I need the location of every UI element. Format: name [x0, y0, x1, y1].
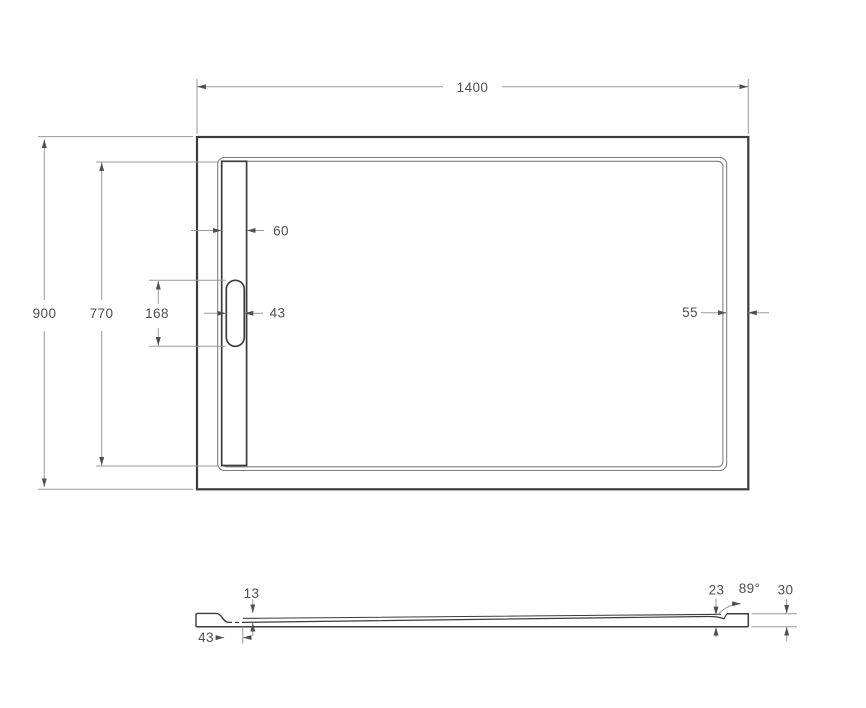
dimension-drain-recess-width: 43	[198, 627, 251, 646]
side-view	[196, 613, 748, 626]
technical-drawing: 1400 900 770 168 60 43 55	[0, 0, 866, 708]
drain-slot-oval	[226, 280, 244, 346]
dim-label-770: 770	[90, 306, 114, 321]
dimension-drain-recess-depth: 13	[244, 586, 260, 636]
dim-label-43-side: 43	[198, 630, 214, 645]
dim-label-168: 168	[145, 306, 169, 321]
dim-label-30: 30	[778, 582, 794, 597]
dim-label-89deg: 89°	[739, 581, 761, 596]
drawing-canvas: 1400 900 770 168 60 43 55	[0, 0, 866, 708]
profile-left-rim	[196, 613, 228, 626]
dim-label-43-top: 43	[270, 306, 286, 321]
dim-label-900: 900	[33, 306, 57, 321]
profile-right-edge	[727, 614, 748, 627]
dim-label-23: 23	[709, 582, 725, 597]
dim-label-55: 55	[682, 305, 698, 320]
dim-label-60: 60	[273, 224, 289, 239]
dim-label-13: 13	[244, 586, 260, 601]
dimension-overall-width: 1400	[197, 79, 748, 134]
dim-label-1400: 1400	[457, 80, 489, 95]
dimension-floor-edge-thickness: 23	[709, 582, 725, 637]
